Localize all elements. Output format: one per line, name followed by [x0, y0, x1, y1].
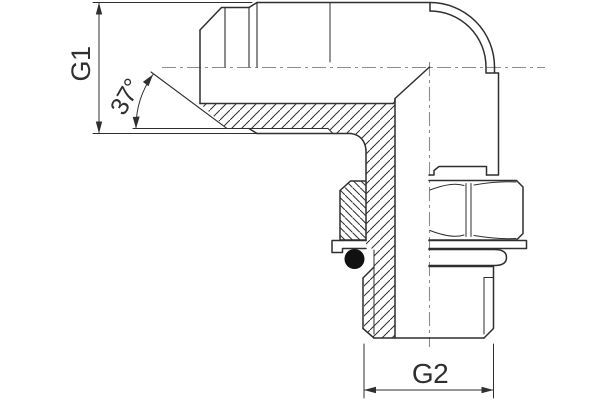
technical-drawing-canvas: G1 37° G2 — [0, 0, 600, 400]
hex-chamfer-curves — [430, 182, 516, 239]
body-top-edge — [257, 3, 430, 12]
washer-right-view — [429, 241, 527, 249]
thread-chamfer-bottom — [249, 129, 257, 134]
oring-bulge-right-view — [429, 250, 507, 266]
angle-label: 37° — [105, 74, 147, 119]
body-right-edge — [487, 73, 499, 175]
o-ring-section-dot — [345, 249, 365, 269]
locknut-section-hatch — [340, 181, 366, 240]
hex-nut-outline — [429, 181, 523, 241]
g2-label: G2 — [412, 358, 448, 389]
hex-facet-lines — [466, 184, 471, 237]
g2-arrow-right — [482, 387, 494, 393]
collar-outline — [429, 167, 487, 176]
dimension-g2: G2 — [364, 344, 494, 398]
g2-arrow-left — [364, 387, 376, 393]
drill-cone-line — [395, 67, 430, 99]
corner-inner-arc — [430, 11, 486, 67]
elbow-fitting-drawing: G1 37° G2 — [0, 0, 600, 400]
angle-arrow-upper — [143, 75, 153, 87]
g1-arrow-up — [96, 3, 102, 15]
thread-chamfer-top — [249, 3, 257, 8]
flare-cone-section-line — [151, 72, 227, 129]
fitting-outline — [200, 3, 527, 339]
angle-arrow-lower — [133, 117, 140, 129]
g1-label: G1 — [66, 46, 96, 81]
g1-arrow-down — [96, 122, 102, 134]
flare-cone-top — [200, 8, 222, 31]
